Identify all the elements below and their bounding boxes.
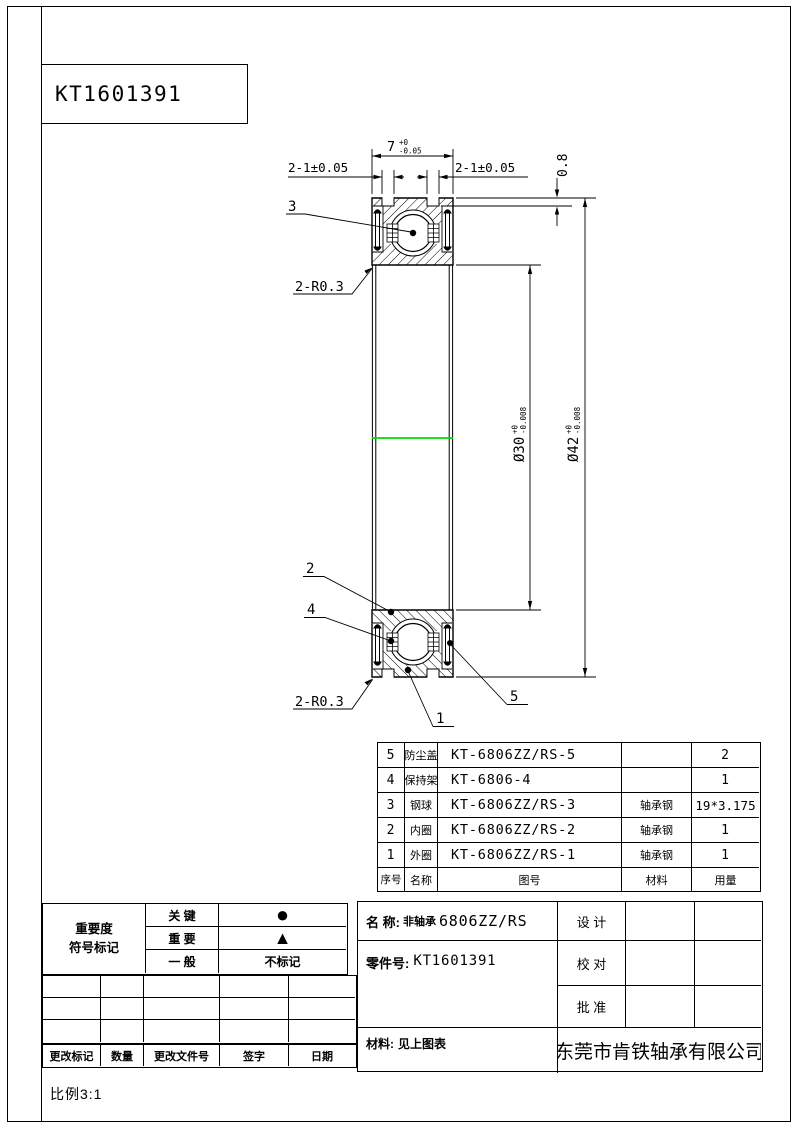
material-value: 见上图表 (398, 1035, 446, 1052)
bom-name: 钢球 (405, 793, 438, 818)
revision-cell (101, 976, 144, 998)
bom-material (622, 743, 692, 768)
importance-label-critical: 关 键 (146, 904, 219, 927)
revision-cell (43, 998, 101, 1020)
bom-drawing-no: KT-6806ZZ/RS-1 (438, 843, 622, 868)
bom-drawing-no: KT-6806ZZ/RS-2 (438, 818, 622, 843)
revision-cell (43, 976, 101, 998)
check-date-cell (695, 941, 761, 986)
part-name-cell: 名 称: 非轴承 6806ZZ/RS (358, 902, 558, 941)
bom-qty: 1 (692, 843, 759, 868)
importance-label-important: 重 要 (146, 927, 219, 950)
dim-width-tol-bot: -0.05 (399, 147, 422, 156)
bom-no: 4 (378, 768, 405, 793)
critical-symbol: ● (219, 904, 346, 927)
revision-header-doc-no: 更改文件号 (144, 1045, 220, 1066)
bom-name: 外圈 (405, 843, 438, 868)
revision-cell (101, 998, 144, 1020)
bom-qty: 1 (692, 818, 759, 843)
bom-header-qty: 用量 (692, 868, 759, 891)
bom-no: 2 (378, 818, 405, 843)
revision-header-qty: 数量 (101, 1045, 144, 1066)
title-block: 名 称: 非轴承 6806ZZ/RS 零件号: KT1601391 材料: 见上… (357, 901, 763, 1072)
bom-header-name: 名称 (405, 868, 438, 891)
company-name: 东莞市肯铁轴承有限公司 (558, 1028, 761, 1073)
approve-name-cell (626, 986, 695, 1028)
general-symbol: 不标记 (219, 950, 346, 973)
bom-material (622, 768, 692, 793)
dim-fillet-top: 2-R0.3 (295, 279, 344, 295)
bom-header-no: 序号 (378, 868, 405, 891)
part-name-label: 名 称: (366, 912, 400, 931)
bom-table: 5 防尘盖 KT-6806ZZ/RS-5 2 4 保持架 KT-6806-4 1… (377, 742, 761, 892)
revision-cell (220, 1020, 289, 1042)
importance-header-line1: 重要度 (75, 920, 113, 939)
dim-width-main: 7 (387, 139, 395, 155)
revision-header-date: 日期 (289, 1045, 355, 1066)
bom-header-material: 材料 (622, 868, 692, 891)
check-name-cell (626, 941, 695, 986)
revision-cell (144, 976, 220, 998)
balloon-1: 1 (436, 711, 444, 727)
revision-cell (144, 1020, 220, 1042)
revision-cell (289, 998, 355, 1020)
design-label: 设 计 (558, 902, 626, 941)
bom-name: 防尘盖 (405, 743, 438, 768)
part-name-prefix: 非轴承 (403, 913, 436, 929)
bom-no: 1 (378, 843, 405, 868)
leader-dots (388, 230, 453, 673)
bom-qty: 2 (692, 743, 759, 768)
revision-grid (42, 975, 357, 1044)
balloon-3: 3 (288, 199, 296, 215)
bom-no: 5 (378, 743, 405, 768)
part-number-label: 零件号: (366, 953, 409, 972)
approve-label: 批 准 (558, 986, 626, 1028)
bom-no: 3 (378, 793, 405, 818)
bom-drawing-no: KT-6806ZZ/RS-5 (438, 743, 622, 768)
important-symbol: ▲ (219, 927, 346, 950)
bom-qty: 19*3.175 (692, 793, 759, 818)
dim-groove-right: 2-1±0.05 (455, 160, 515, 175)
material-cell: 材料: 见上图表 (358, 1028, 558, 1073)
revision-cell (289, 976, 355, 998)
revision-header-mark: 更改标记 (43, 1045, 101, 1066)
part-name-model: 6806ZZ/RS (439, 912, 527, 930)
approve-date-cell (695, 986, 761, 1028)
dim-bore-tol-bot: -0.008 (519, 406, 528, 434)
revision-cell (144, 998, 220, 1020)
bom-header-drawing: 图号 (438, 868, 622, 891)
drawing-sheet: KT1601391 (0, 0, 800, 1131)
scale-note: 比例3:1 (50, 1084, 102, 1104)
dim-od-tol-bot: -0.008 (573, 406, 582, 434)
balloon-4: 4 (307, 602, 315, 618)
dim-groove-depth: 0.8 (556, 154, 571, 177)
balloon-2: 2 (306, 561, 314, 577)
bom-material: 轴承钢 (622, 818, 692, 843)
revision-cell (220, 976, 289, 998)
revision-header-row: 更改标记 数量 更改文件号 签字 日期 (42, 1044, 357, 1068)
importance-header-line2: 符号标记 (69, 939, 119, 958)
revision-cell (220, 998, 289, 1020)
revision-cell (289, 1020, 355, 1042)
design-date-cell (695, 902, 761, 941)
revision-header-signature: 签字 (220, 1045, 289, 1066)
dim-od-main: Ø42 (566, 437, 582, 462)
balloon-5: 5 (510, 689, 518, 705)
dim-groove-left: 2-1±0.05 (288, 160, 348, 175)
bom-drawing-no: KT-6806-4 (438, 768, 622, 793)
part-number-cell: 零件号: KT1601391 (358, 941, 558, 1028)
bom-qty: 1 (692, 768, 759, 793)
material-label: 材料: (366, 1035, 394, 1052)
bom-name: 保持架 (405, 768, 438, 793)
bottom-half-section (372, 610, 453, 678)
bom-material: 轴承钢 (622, 843, 692, 868)
check-label: 校 对 (558, 941, 626, 986)
dim-bore-main: Ø30 (512, 437, 528, 462)
part-number-value: KT1601391 (413, 953, 496, 969)
bom-name: 内圈 (405, 818, 438, 843)
importance-table: 重要度 符号标记 关 键 ● 重 要 ▲ 一 般 不标记 (42, 903, 348, 975)
importance-header: 重要度 符号标记 (43, 904, 146, 973)
bom-drawing-no: KT-6806ZZ/RS-3 (438, 793, 622, 818)
revision-cell (43, 1020, 101, 1042)
importance-label-general: 一 般 (146, 950, 219, 973)
design-name-cell (626, 902, 695, 941)
dim-fillet-bottom: 2-R0.3 (295, 694, 344, 710)
bom-material: 轴承钢 (622, 793, 692, 818)
revision-cell (101, 1020, 144, 1042)
